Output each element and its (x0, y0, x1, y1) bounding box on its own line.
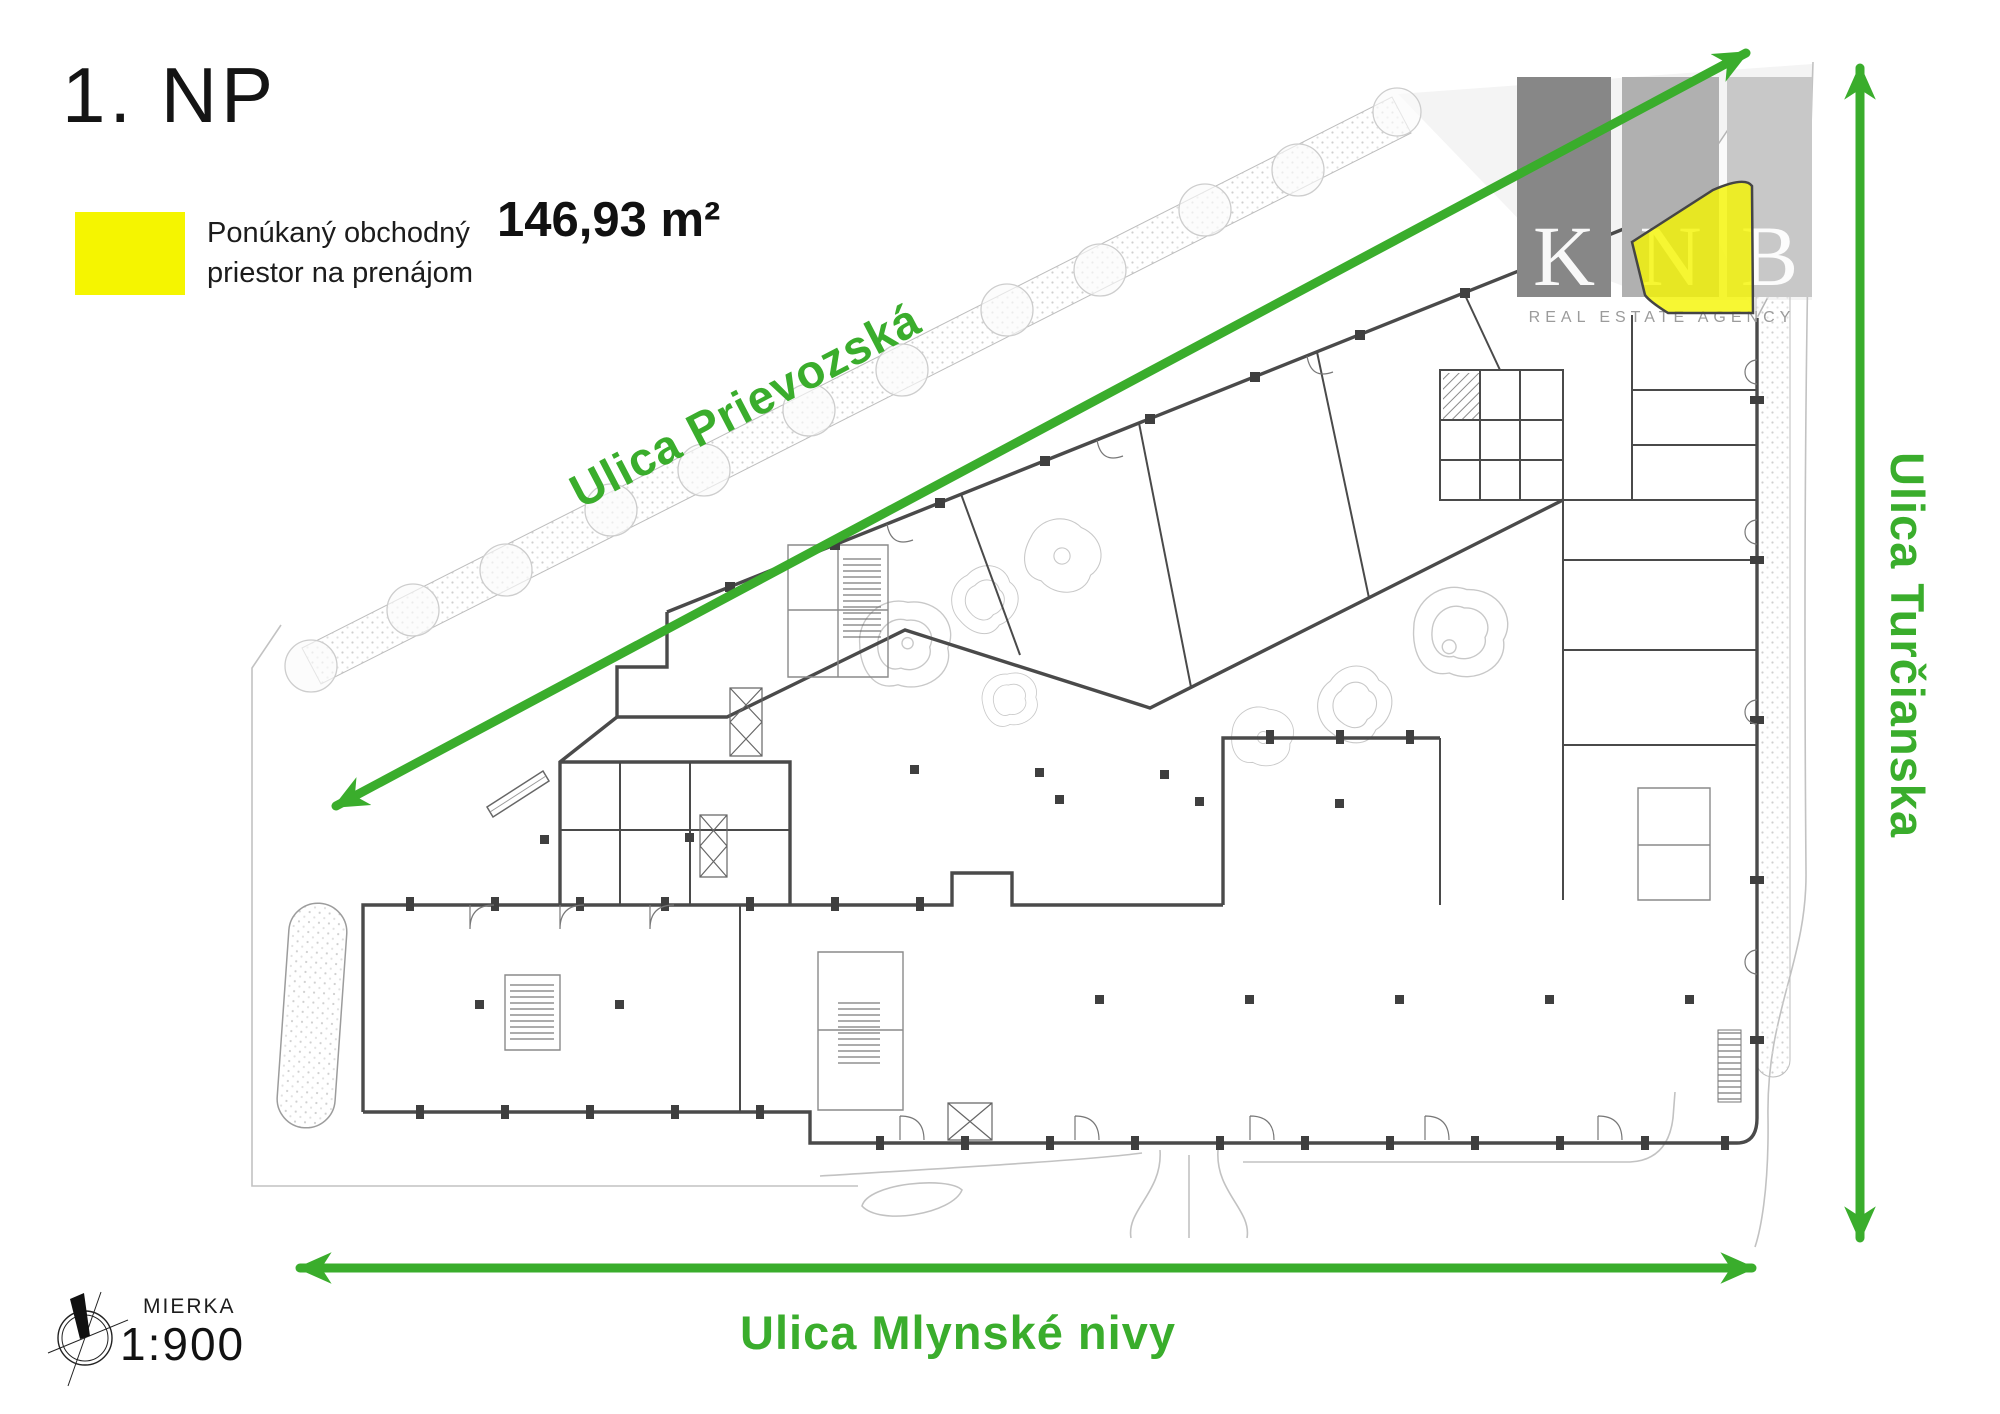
columns (406, 245, 1764, 1150)
tree-strip (285, 88, 1421, 692)
sidewalk-strip-right (1756, 205, 1790, 1077)
street-label-prievozska: Ulica Prievozská (561, 291, 930, 518)
stair-x-symbols (700, 688, 992, 1140)
stair-cores (510, 373, 1741, 1102)
street-label-turcianska: Ulica Turčianska (1880, 452, 1935, 838)
watermark-letter-n: N (1622, 210, 1719, 302)
watermark-letter-b: B (1727, 210, 1812, 302)
watermark-subtitle: REAL ESTATE AGENCY (1512, 309, 1812, 327)
street-label-mlynske-nivy: Ulica Mlynské nivy (740, 1305, 1176, 1360)
legend-swatch (75, 212, 185, 295)
planting-island-left (275, 901, 349, 1129)
landscape-features (852, 505, 1517, 775)
area-value: 146,93 m² (497, 192, 720, 248)
ramp (487, 771, 549, 817)
watermark-letter-k: K (1517, 210, 1611, 302)
scale-label: MIERKA (143, 1295, 236, 1319)
building-walls (363, 192, 1757, 1143)
page-title: 1. NP (62, 50, 277, 141)
scale-value: 1:900 (120, 1317, 245, 1371)
legend-label: Ponúkaný obchodný priestor na prenájom (207, 213, 517, 293)
compass-icon (48, 1292, 128, 1386)
